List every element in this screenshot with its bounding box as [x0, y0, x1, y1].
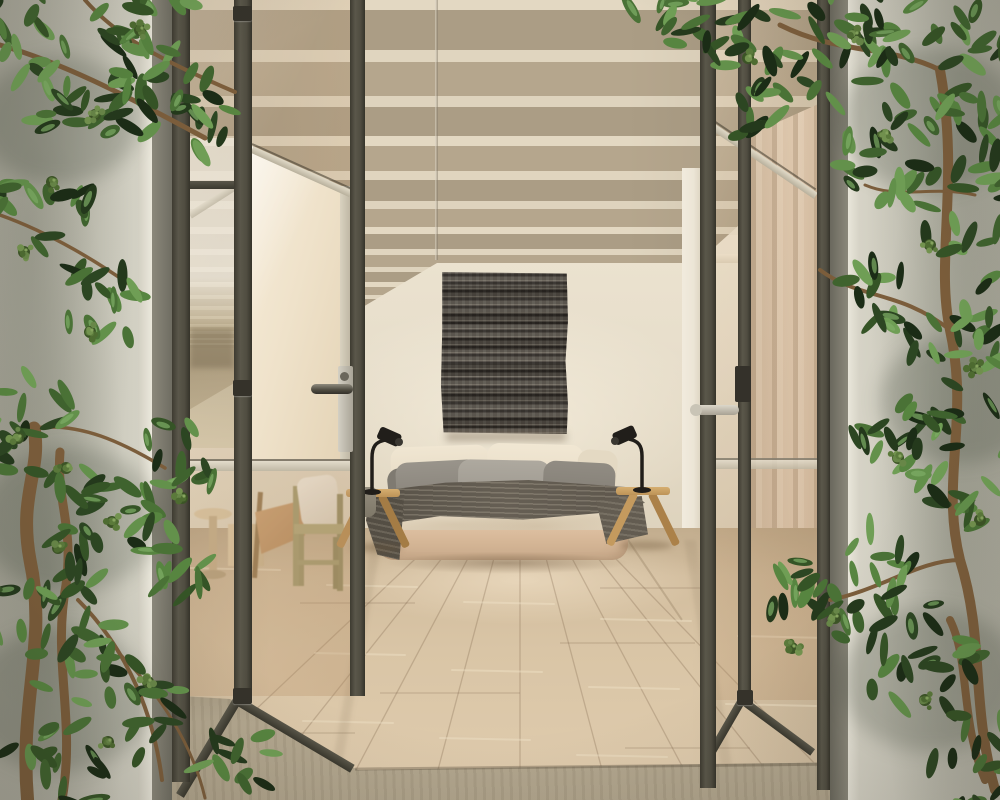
climbing-plant-left	[0, 0, 340, 800]
scene-root	[0, 0, 1000, 800]
handle-stile-left	[350, 0, 365, 696]
door-thumbturn-left	[340, 372, 349, 381]
climbing-plant-right	[630, 0, 1000, 800]
